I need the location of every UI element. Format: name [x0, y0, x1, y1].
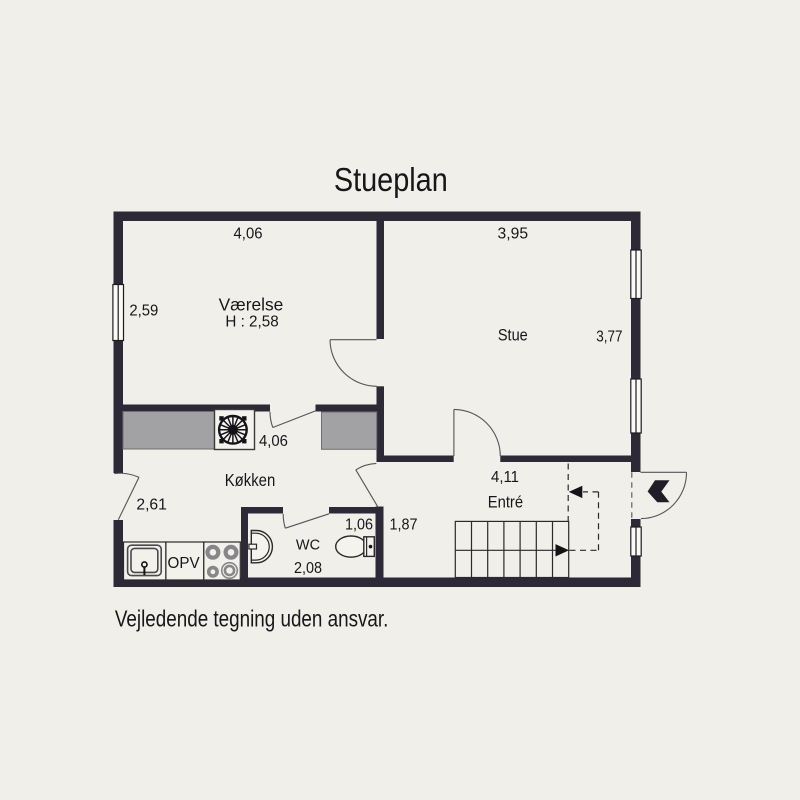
svg-text:H : 2,58: H : 2,58 — [225, 313, 278, 330]
svg-text:4,06: 4,06 — [259, 432, 288, 450]
svg-text:2,61: 2,61 — [136, 496, 167, 513]
svg-text:2,59: 2,59 — [129, 302, 158, 320]
svg-text:Stueplan: Stueplan — [334, 161, 448, 198]
svg-text:OPV: OPV — [168, 555, 201, 572]
svg-text:Køkken: Køkken — [225, 469, 276, 490]
svg-text:Entré: Entré — [488, 494, 524, 512]
svg-text:1,06: 1,06 — [345, 516, 373, 534]
svg-text:4,11: 4,11 — [491, 468, 519, 486]
svg-text:WC: WC — [296, 537, 320, 553]
svg-text:2,08: 2,08 — [294, 559, 322, 577]
svg-text:Vejledende tegning uden ansvar: Vejledende tegning uden ansvar. — [115, 607, 388, 632]
svg-text:Stue: Stue — [498, 327, 528, 345]
svg-text:4,06: 4,06 — [234, 225, 263, 243]
svg-text:3,95: 3,95 — [498, 226, 529, 243]
svg-text:Værelse: Værelse — [219, 294, 284, 314]
svg-text:1,87: 1,87 — [389, 516, 417, 534]
svg-text:3,77: 3,77 — [596, 329, 622, 346]
